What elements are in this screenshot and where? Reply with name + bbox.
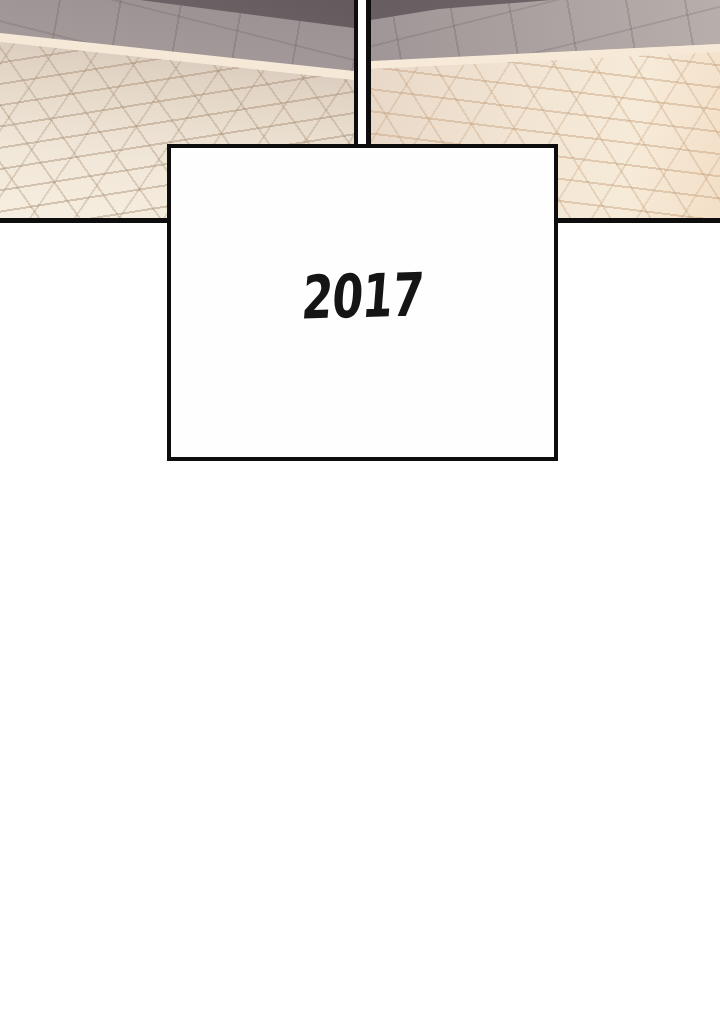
- panel-gutter: [358, 0, 366, 144]
- year-caption-text: 2017: [300, 264, 426, 327]
- year-caption-box: 2017: [167, 144, 558, 461]
- comic-page: 2017: [0, 0, 720, 1023]
